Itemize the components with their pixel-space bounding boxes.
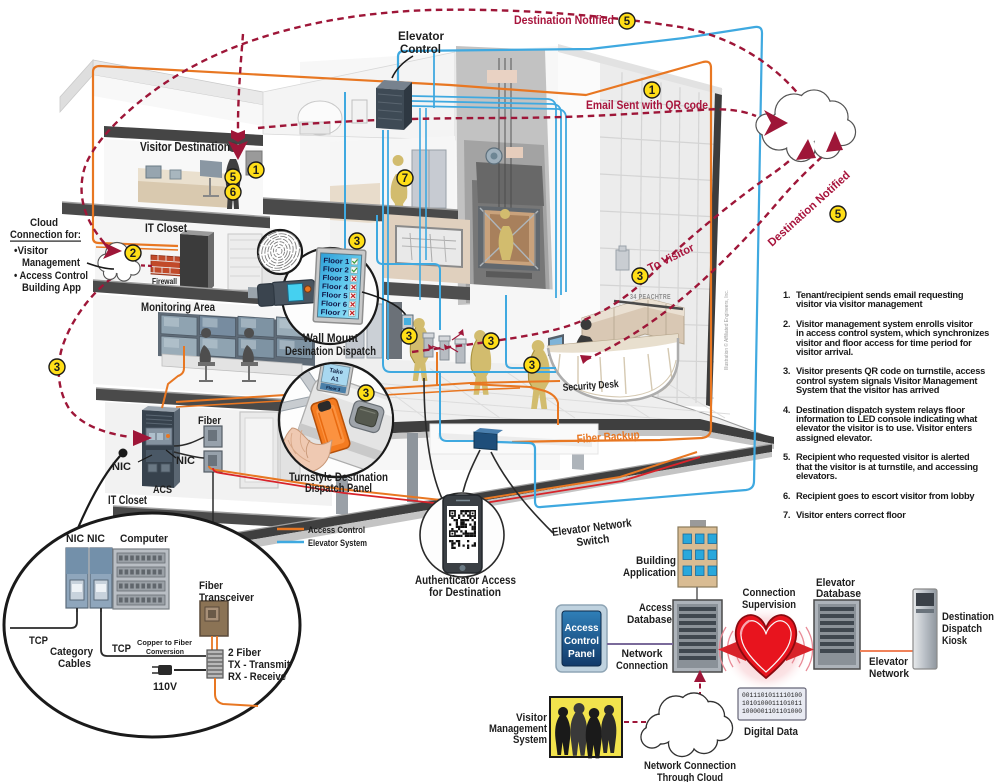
svg-text:Building: Building	[636, 555, 676, 567]
svg-text:3: 3	[354, 236, 360, 248]
svg-text:Access: Access	[639, 602, 672, 614]
svg-text:IT Closet: IT Closet	[145, 221, 187, 235]
svg-text:6: 6	[230, 187, 236, 199]
svg-text:Access Control: Access Control	[308, 525, 365, 536]
svg-text:3: 3	[637, 271, 643, 283]
svg-text:Firewall: Firewall	[152, 277, 177, 286]
svg-text:Wall Mount: Wall Mount	[303, 331, 358, 345]
svg-text:3: 3	[406, 331, 412, 343]
svg-text:Cloud: Cloud	[30, 217, 58, 229]
svg-text:Desination Dispatch: Desination Dispatch	[285, 344, 376, 358]
svg-text:Building App: Building App	[22, 282, 81, 294]
svg-text:34 PEACHTRE: 34 PEACHTRE	[630, 294, 671, 301]
svg-text:Destination Notified: Destination Notified	[514, 15, 614, 27]
svg-text:Email Sent with QR code: Email Sent with QR code	[586, 100, 708, 112]
svg-text:Control: Control	[564, 635, 599, 647]
svg-text:NIC: NIC	[176, 455, 195, 467]
svg-text:3: 3	[363, 388, 369, 400]
svg-text:Supervision: Supervision	[742, 599, 796, 611]
svg-text:5: 5	[624, 16, 631, 28]
svg-text:Database: Database	[627, 614, 672, 626]
svg-text:System: System	[513, 734, 547, 746]
svg-text:Fiber: Fiber	[199, 580, 224, 592]
svg-text:TCP: TCP	[29, 635, 48, 647]
svg-text:RX - Receive: RX - Receive	[228, 671, 286, 683]
svg-text:3: 3	[488, 336, 494, 348]
svg-text:Application: Application	[623, 567, 676, 579]
svg-text:110V: 110V	[153, 681, 178, 693]
svg-text:1010100011101011: 1010100011101011	[742, 700, 802, 707]
svg-text:Dispatch Panel: Dispatch Panel	[305, 483, 372, 495]
svg-text:2: 2	[130, 248, 136, 260]
svg-text:• Access Control: • Access Control	[14, 270, 88, 282]
svg-text:Destination: Destination	[942, 611, 994, 623]
svg-text:Elevator: Elevator	[869, 656, 909, 668]
svg-text:5: 5	[230, 172, 237, 184]
svg-text:2 Fiber: 2 Fiber	[228, 647, 262, 659]
svg-text:3: 3	[54, 362, 60, 374]
svg-text:Copper to Fiber: Copper to Fiber	[137, 638, 192, 647]
svg-text:Kiosk: Kiosk	[942, 635, 968, 647]
svg-text:NIC NIC: NIC NIC	[66, 533, 105, 545]
svg-text:Dispatch: Dispatch	[942, 623, 982, 635]
svg-text:Digital Data: Digital Data	[744, 726, 799, 738]
svg-text:Network: Network	[869, 668, 910, 680]
svg-text:•Visitor: •Visitor	[14, 245, 49, 257]
svg-text:Management: Management	[22, 257, 80, 269]
svg-text:1: 1	[253, 165, 260, 177]
svg-text:Transceiver: Transceiver	[199, 592, 255, 604]
svg-text:TX - Transmit: TX - Transmit	[228, 659, 290, 671]
svg-text:Through Cloud: Through Cloud	[657, 772, 723, 782]
svg-text:Monitoring Area: Monitoring Area	[141, 300, 215, 314]
svg-text:Network Connection: Network Connection	[644, 760, 736, 772]
svg-text:IT Closet: IT Closet	[108, 493, 147, 507]
svg-text:Access: Access	[565, 622, 599, 634]
svg-text:Computer: Computer	[120, 533, 169, 545]
svg-text:Elevator System: Elevator System	[308, 538, 367, 549]
svg-text:Database: Database	[816, 588, 861, 600]
svg-text:Authenticator Access: Authenticator Access	[415, 575, 516, 587]
svg-text:Elevator: Elevator	[398, 29, 444, 43]
svg-text:Panel: Panel	[568, 648, 595, 660]
svg-text:Control: Control	[400, 42, 441, 56]
svg-text:1000001101101000: 1000001101101000	[742, 708, 802, 715]
svg-text:5: 5	[835, 209, 842, 221]
svg-text:ACS: ACS	[153, 484, 172, 496]
svg-text:for Destination: for Destination	[429, 587, 501, 599]
svg-text:Category: Category	[50, 646, 94, 658]
svg-text:Network: Network	[622, 648, 664, 660]
svg-text:Connection for:: Connection for:	[10, 229, 81, 241]
svg-text:TCP: TCP	[112, 643, 131, 655]
svg-text:Floor 7: Floor 7	[320, 307, 346, 317]
svg-text:3: 3	[529, 360, 535, 372]
svg-text:Cables: Cables	[58, 658, 91, 670]
svg-text:Fiber: Fiber	[198, 415, 222, 427]
svg-text:Connection: Connection	[743, 587, 796, 599]
svg-text:0011101011110100: 0011101011110100	[742, 692, 802, 699]
svg-text:1: 1	[649, 85, 656, 97]
svg-text:NIC: NIC	[112, 461, 131, 473]
svg-text:Illustration © Affiliated Engi: Illustration © Affiliated Engineers, Inc…	[723, 290, 730, 370]
svg-text:7: 7	[402, 173, 408, 185]
svg-text:Visitor Destination: Visitor Destination	[140, 140, 230, 154]
svg-text:Conversion: Conversion	[146, 647, 184, 656]
svg-text:Connection: Connection	[616, 660, 668, 672]
